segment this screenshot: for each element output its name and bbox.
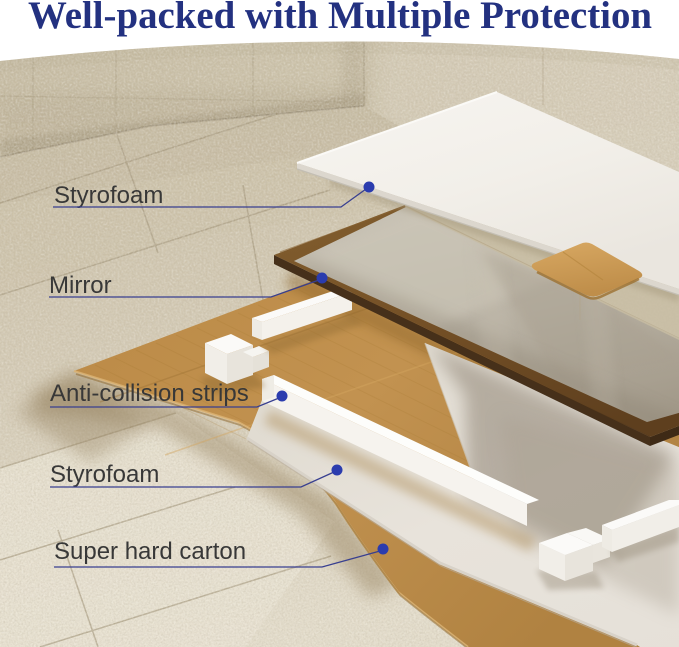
svg-text:Styrofoam: Styrofoam	[54, 182, 163, 209]
svg-text:Styrofoam: Styrofoam	[50, 461, 159, 488]
svg-text:Well-packed with Multiple Prot: Well-packed with Multiple Protection	[28, 0, 652, 37]
svg-text:Super hard carton: Super hard carton	[54, 538, 246, 565]
svg-text:Anti-collision strips: Anti-collision strips	[50, 380, 249, 407]
svg-text:Mirror: Mirror	[49, 272, 112, 299]
